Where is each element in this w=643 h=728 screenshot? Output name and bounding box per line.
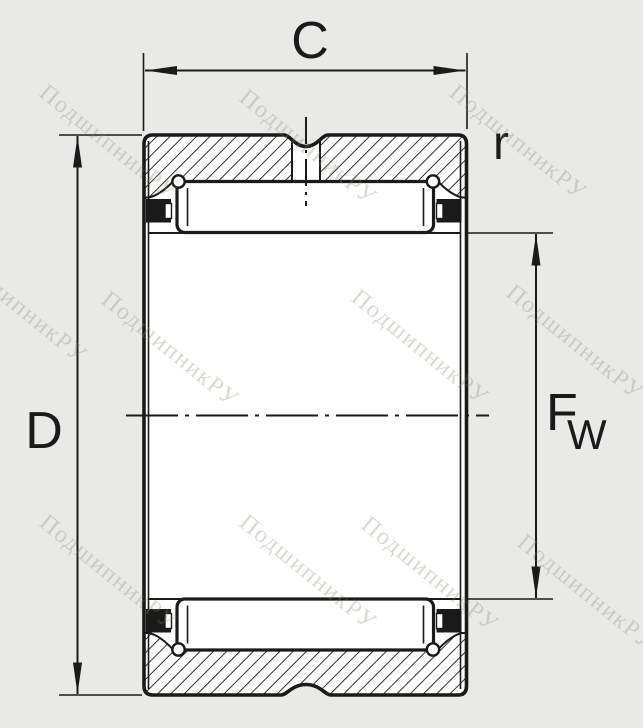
drawing-canvas: C D F W r ПодшипникРУ ПодшипникРУ Подшип… <box>0 0 643 728</box>
needle-roller-assembly-top <box>146 175 462 232</box>
roller-pin-top-right <box>427 175 439 187</box>
roller-pin-bottom-left <box>172 643 184 655</box>
needle-roller-assembly-bottom <box>146 599 462 656</box>
needle-roller-bottom <box>177 599 434 650</box>
roller-pin-bottom-right <box>427 643 439 655</box>
cage-notch-bottom-right <box>437 614 444 629</box>
needle-roller-top <box>177 182 434 233</box>
label-fw-subscript: W <box>567 411 607 458</box>
label-d: D <box>25 402 63 460</box>
cage-notch-top-right <box>437 204 444 219</box>
cage-notch-top-left <box>165 204 172 219</box>
label-c: C <box>291 12 329 70</box>
bearing-cross-section-drawing: C D F W r ПодшипникРУ ПодшипникРУ Подшип… <box>0 0 643 728</box>
